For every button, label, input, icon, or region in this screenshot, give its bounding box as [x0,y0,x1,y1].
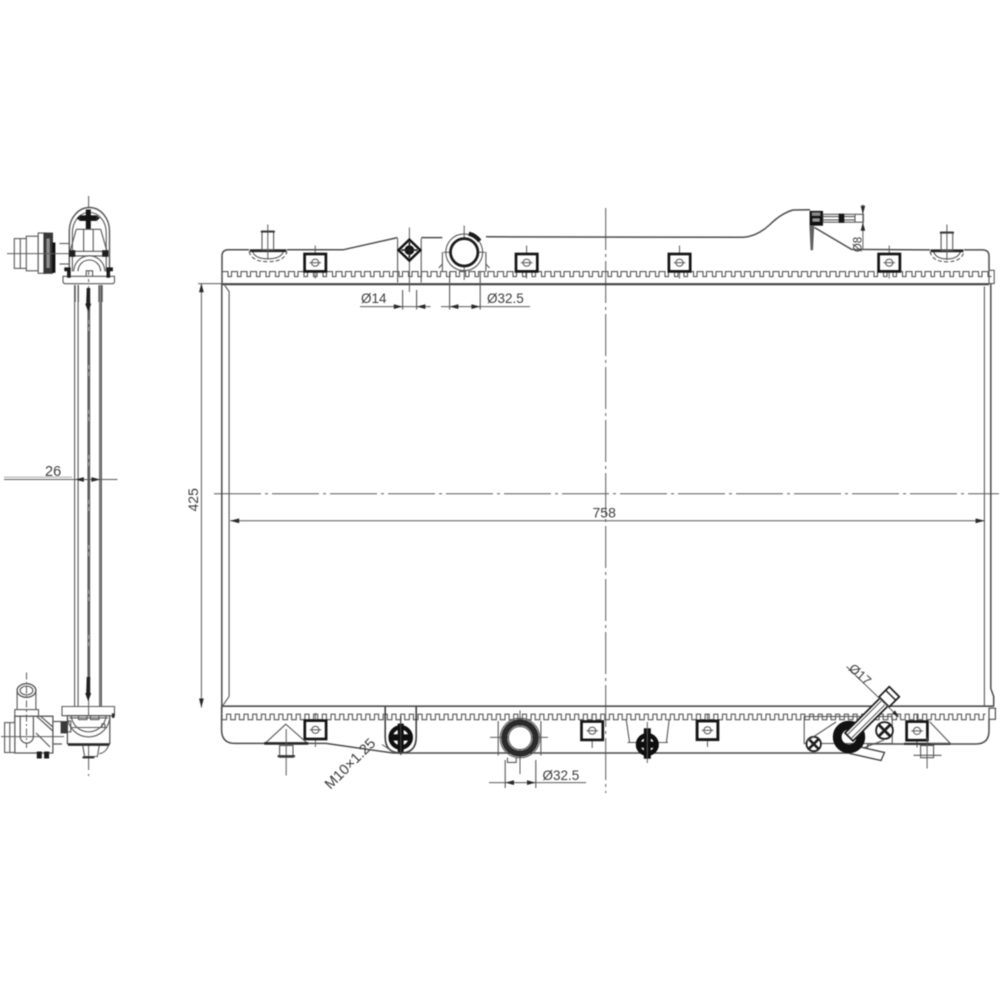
svg-text:758: 758 [593,505,617,521]
svg-text:Ø8: Ø8 [853,237,865,252]
svg-text:Ø32.5: Ø32.5 [487,291,524,306]
svg-text:425: 425 [185,488,201,512]
svg-text:Ø14: Ø14 [361,291,387,306]
svg-text:Ø32.5: Ø32.5 [543,768,580,783]
